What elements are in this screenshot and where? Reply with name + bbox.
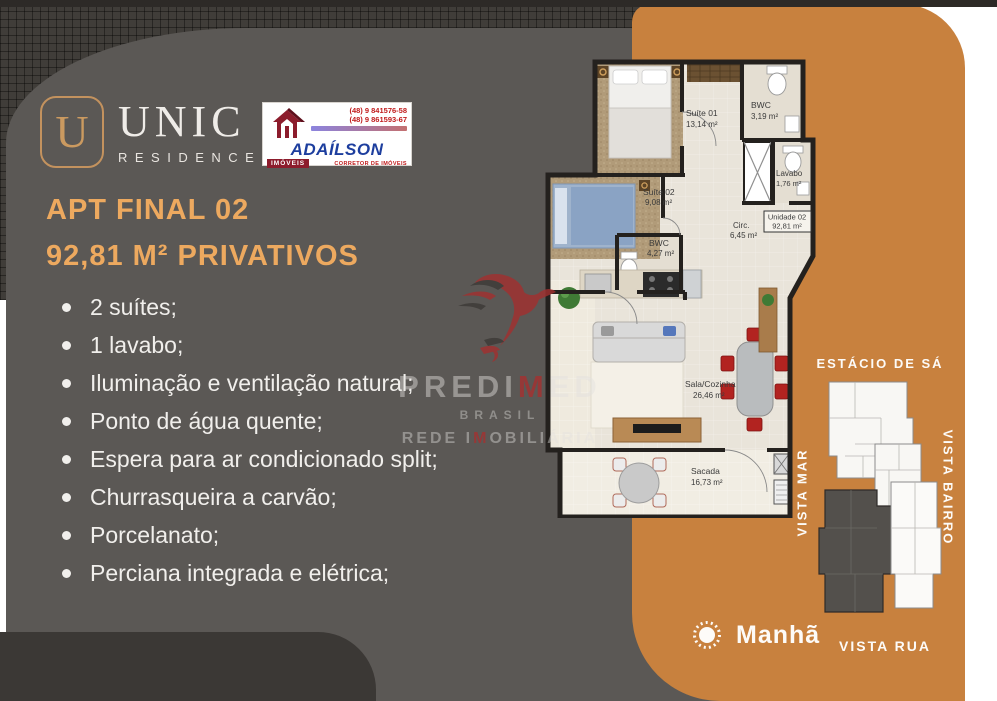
broker-phone-2: (48) 9 861593-67 xyxy=(311,115,407,124)
unit-highlight-footprint xyxy=(819,490,895,612)
broker-tag: IMÓVEIS xyxy=(267,159,309,168)
building-footprint xyxy=(891,482,941,608)
balcony-table-icon xyxy=(619,463,659,503)
flyer-canvas: U UNIC RESIDENCE (48) 9 841576-58 (48) 9… xyxy=(0,0,997,701)
house-icon xyxy=(267,106,311,140)
headline-block: APT FINAL 02 92,81 M² PRIVATIVOS xyxy=(46,194,359,273)
balcony-chair xyxy=(653,458,666,471)
feature-item: 1 lavabo; xyxy=(60,326,438,364)
room-label: Sacada xyxy=(691,466,720,476)
sun-icon xyxy=(690,618,724,652)
room-label: BWC xyxy=(751,100,771,110)
bottom-left-dark-shape xyxy=(0,632,376,701)
sink-icon xyxy=(785,116,799,132)
unic-wordmark: UNIC xyxy=(118,100,261,144)
nightstand-icon xyxy=(597,66,609,78)
balcony-chair xyxy=(653,494,666,507)
unic-residence-logo: U UNIC RESIDENCE xyxy=(40,96,261,168)
siteplan-left-label: VISTA MAR xyxy=(795,428,810,558)
unic-subtitle: RESIDENCE xyxy=(118,150,261,165)
siteplan-bottom-label: VISTA RUA xyxy=(810,638,960,654)
unic-monogram-frame: U xyxy=(40,96,104,168)
dining-table-icon xyxy=(737,342,773,416)
room-label: Suíte 02 xyxy=(643,187,675,197)
room-area: 16,73 m² xyxy=(691,478,723,487)
unit-tag-area: 92,81 m² xyxy=(772,222,802,231)
siteplan-right-label: VISTA BAIRRO xyxy=(941,418,956,558)
feature-item: Porcelanato; xyxy=(60,516,438,554)
feature-list: 2 suítes; 1 lavabo; Iluminação e ventila… xyxy=(60,288,438,592)
dining-chair xyxy=(775,356,788,371)
apartment-title: APT FINAL 02 xyxy=(46,194,359,227)
sun-label: Manhã xyxy=(736,621,820,650)
plant-icon xyxy=(762,294,774,306)
room-area: 1,76 m² xyxy=(776,179,802,188)
apartment-area: 92,81 M² PRIVATIVOS xyxy=(46,240,359,273)
dining-chair xyxy=(721,356,734,371)
room-area: 3,19 m² xyxy=(751,112,778,121)
room-label: Sala/Cozinha xyxy=(685,379,736,389)
feature-item: Ponto de água quente; xyxy=(60,402,438,440)
broker-logo-card: (48) 9 841576-58 (48) 9 861593-67 ADAÍLS… xyxy=(262,102,412,166)
room-area: 13,14 m² xyxy=(686,120,718,129)
feature-item: Perciana integrada e elétrica; xyxy=(60,554,438,592)
kitchen-sink-icon xyxy=(585,274,611,292)
dining-chair xyxy=(747,418,762,431)
room-label: BWC xyxy=(649,238,669,248)
feature-item: Iluminação e ventilação natural; xyxy=(60,364,438,402)
room-area: 6,45 m² xyxy=(730,231,757,240)
room-area: 26,46 m² xyxy=(693,391,725,400)
feature-item: 2 suítes; xyxy=(60,288,438,326)
feature-item: Churrasqueira a carvão; xyxy=(60,478,438,516)
unic-monogram-letter: U xyxy=(55,109,88,155)
broker-phone-1: (48) 9 841576-58 xyxy=(311,106,407,115)
broker-address-line xyxy=(311,126,407,131)
feature-item: Espera para ar condicionado split; xyxy=(60,440,438,478)
room-area: 4,27 m² xyxy=(647,249,674,258)
room-label: Circ. xyxy=(733,221,749,230)
floorplan-svg: Suíte 01 13,14 m² BWC 3,19 m² Lavabo 1,7… xyxy=(545,56,817,518)
room-label: Lavabo xyxy=(776,169,803,178)
dining-chair xyxy=(775,384,788,399)
top-edge-strip xyxy=(0,0,997,7)
sun-orientation: Manhã xyxy=(690,618,820,652)
siteplan-svg xyxy=(815,378,945,633)
unit-tag-label: Unidade 02 xyxy=(768,213,806,222)
closet-icon xyxy=(687,64,740,82)
broker-role: CORRETOR DE IMÓVEIS xyxy=(334,161,407,167)
broker-name: ADAÍLSON xyxy=(267,141,407,158)
siteplan-top-label: ESTÁCIO DE SÁ xyxy=(800,356,960,371)
room-label: Suíte 01 xyxy=(686,108,718,118)
room-area: 9,08 m² xyxy=(645,198,672,207)
toilet-icon xyxy=(768,73,786,95)
